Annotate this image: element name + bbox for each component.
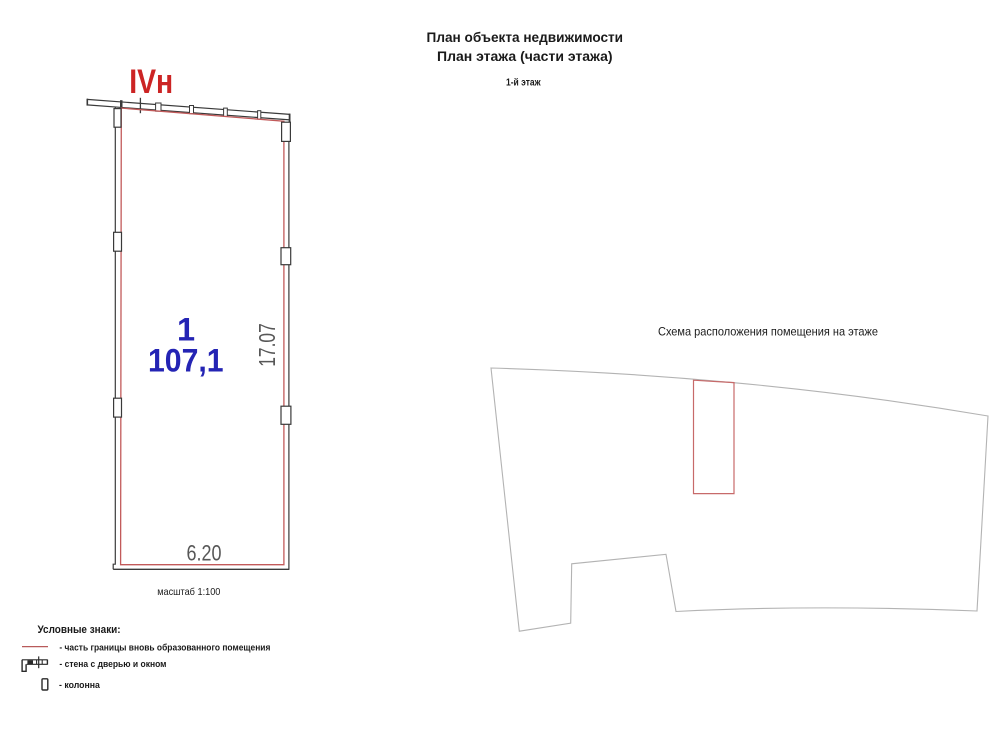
svg-text:План этажа (части этажа): План этажа (части этажа) xyxy=(437,49,613,65)
svg-text:Схема расположения помещения н: Схема расположения помещения на этаже xyxy=(658,325,878,339)
svg-text:- стена с дверью и окном: - стена с дверью и окном xyxy=(59,659,166,670)
svg-text:107,1: 107,1 xyxy=(148,343,224,379)
svg-text:6.20: 6.20 xyxy=(187,541,222,566)
svg-text:План объекта недвижимости: План объекта недвижимости xyxy=(427,30,624,46)
svg-text:- колонна: - колонна xyxy=(59,680,100,691)
svg-text:Условные знаки:: Условные знаки: xyxy=(38,624,121,636)
svg-text:- часть границы вновь образова: - часть границы вновь образованного поме… xyxy=(59,642,270,653)
svg-text:IVн: IVн xyxy=(129,63,173,101)
svg-text:17.07: 17.07 xyxy=(254,323,280,367)
svg-text:1-й этаж: 1-й этаж xyxy=(506,78,541,89)
svg-text:масштаб 1:100: масштаб 1:100 xyxy=(157,586,220,598)
